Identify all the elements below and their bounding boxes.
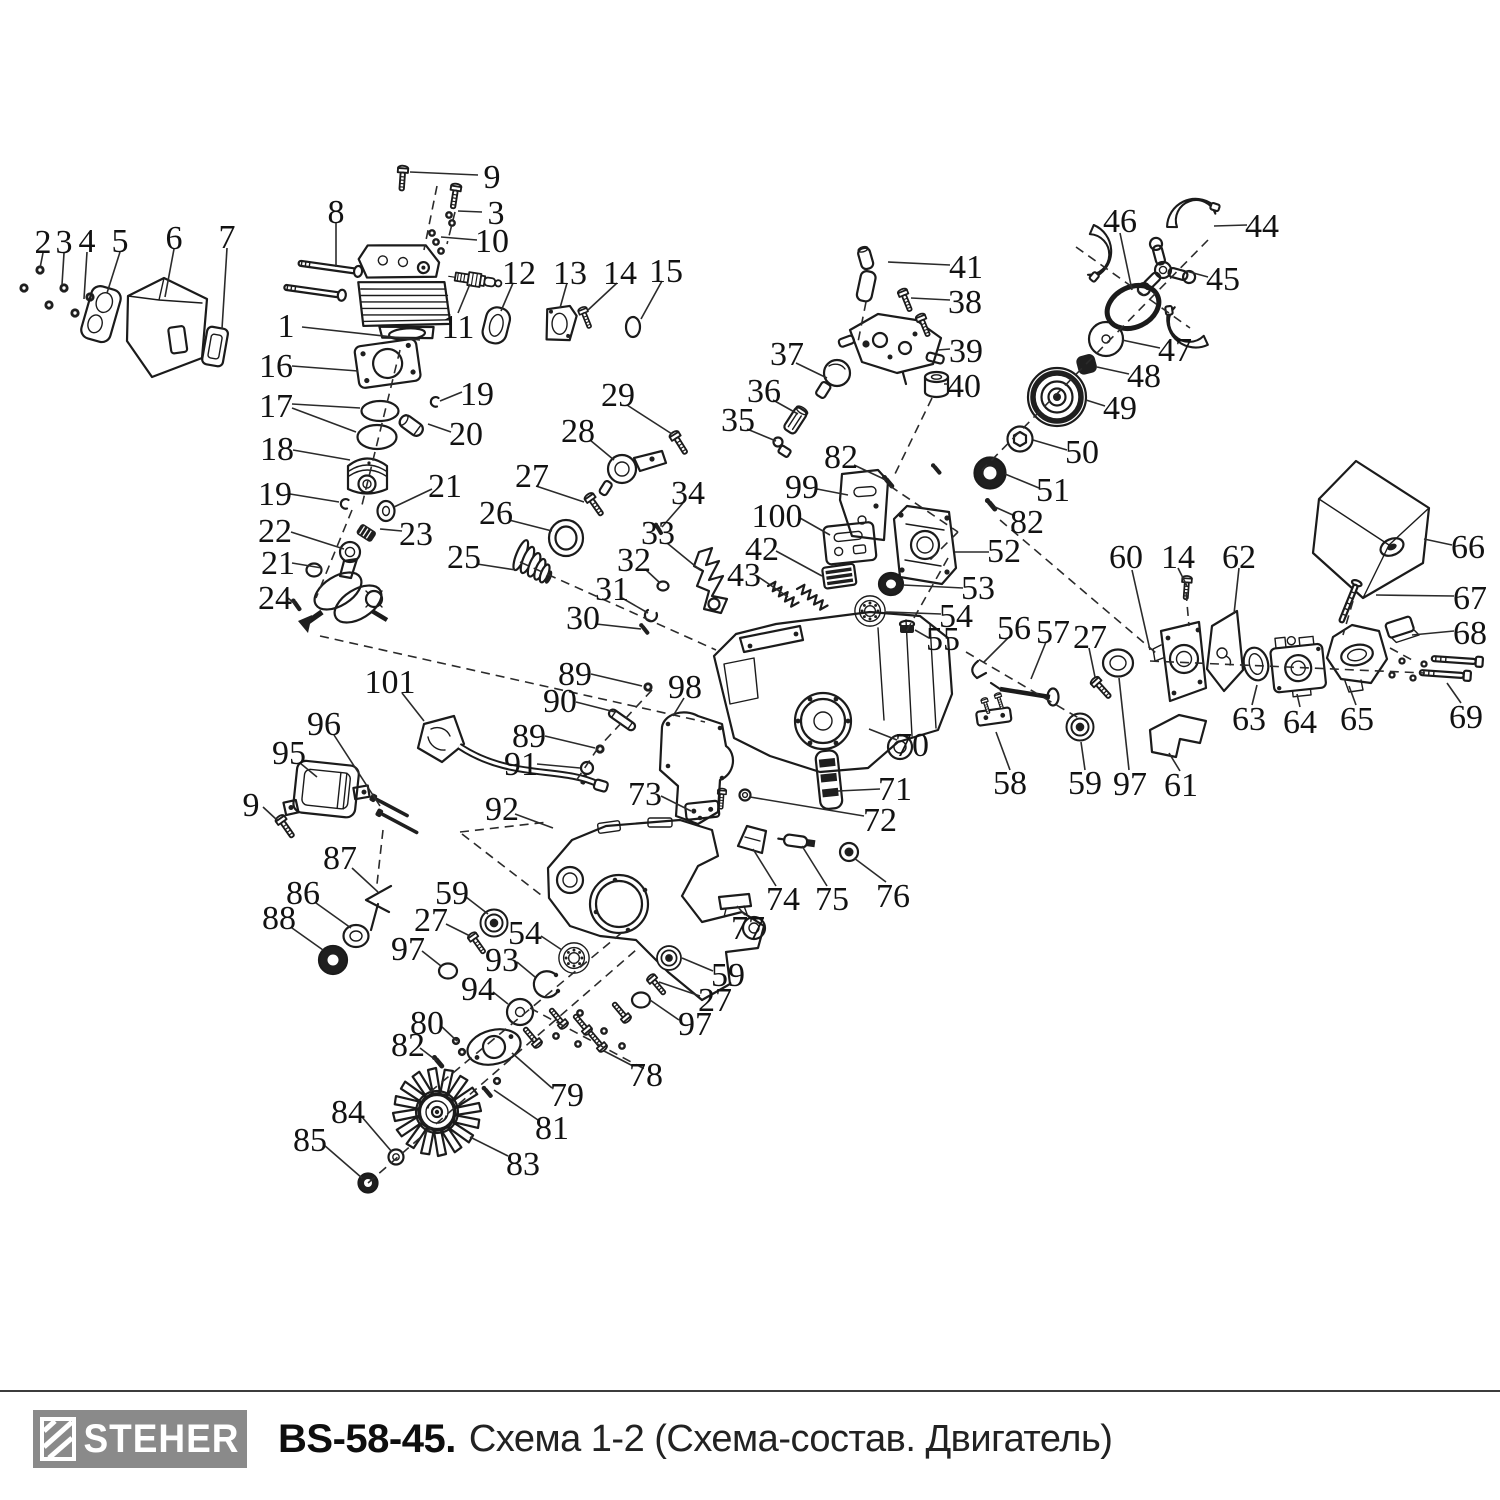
callout-27: 27 <box>515 458 549 495</box>
part-heat-plate-61 <box>1150 715 1206 757</box>
part-chain-tensioner <box>694 548 727 613</box>
part-exhaust-gasket <box>480 305 512 346</box>
part-intake-flange <box>544 303 578 342</box>
leader-line <box>650 1000 679 1020</box>
callout-23: 23 <box>399 516 433 553</box>
callout-21: 21 <box>428 468 462 505</box>
part-screw-cluster-78 <box>521 1000 632 1053</box>
leader-line <box>1186 271 1208 277</box>
part-washer-disc-47 <box>1089 322 1123 356</box>
leader-line <box>470 1137 508 1156</box>
callout-27: 27 <box>1073 619 1107 656</box>
leader-line <box>1119 678 1129 770</box>
brand-logo: STEHER <box>33 1410 247 1468</box>
part-grommet-88 <box>319 946 347 974</box>
leader-line <box>911 298 950 300</box>
leader-line <box>1424 539 1452 545</box>
callout-63: 63 <box>1232 701 1266 738</box>
leader-line <box>1005 474 1039 488</box>
leader-line <box>591 674 642 686</box>
leader-line <box>596 624 641 629</box>
part-bolts-69 <box>1388 654 1483 682</box>
part-intake-boot-65 <box>1327 625 1387 692</box>
callout-79: 79 <box>550 1077 584 1114</box>
callout-19: 19 <box>460 376 494 413</box>
callout-50: 50 <box>1065 434 1099 471</box>
callout-84: 84 <box>331 1094 365 1131</box>
callout-78: 78 <box>629 1057 663 1094</box>
callout-15: 15 <box>649 253 683 290</box>
leader-line <box>293 450 350 460</box>
callout-39: 39 <box>949 333 983 370</box>
doc-title: BS-58-45. Схема 1-2 (Схема-состав. Двига… <box>278 1408 1112 1470</box>
callout-9: 9 <box>484 159 501 196</box>
part-oring-97c <box>632 993 650 1008</box>
callout-19: 19 <box>258 476 292 513</box>
part-base-gasket <box>354 338 421 388</box>
leader-line <box>477 564 516 570</box>
part-cup-washer-51 <box>975 458 1006 489</box>
callout-49: 49 <box>1103 390 1137 427</box>
part-lever-74 <box>738 826 766 853</box>
part-oil-seal-53 <box>879 573 903 595</box>
assembly-axis-line <box>462 834 545 898</box>
callout-24: 24 <box>258 580 292 617</box>
leader-line <box>869 729 897 740</box>
leader-line <box>817 489 848 495</box>
callout-26: 26 <box>479 495 513 532</box>
callout-44: 44 <box>1245 208 1279 245</box>
callout-7: 7 <box>219 219 236 256</box>
callout-4: 4 <box>79 223 96 260</box>
callout-13: 13 <box>553 255 587 292</box>
leader-line <box>316 903 351 928</box>
part-worm-gear <box>510 539 561 586</box>
brand-name: STEHER <box>83 1416 239 1461</box>
leader-line <box>292 408 356 432</box>
part-disc-94 <box>507 999 533 1025</box>
leader-line <box>446 924 470 936</box>
callout-96: 96 <box>307 706 341 743</box>
part-flywheel <box>393 1068 481 1156</box>
callout-52: 52 <box>987 533 1021 570</box>
leader-line <box>682 958 713 971</box>
callout-88: 88 <box>262 900 296 937</box>
callout-25: 25 <box>447 539 481 576</box>
callout-14: 14 <box>1161 539 1195 576</box>
callout-45: 45 <box>1206 261 1240 298</box>
leader-line <box>458 211 482 212</box>
callout-1: 1 <box>278 308 295 345</box>
leader-line <box>440 392 462 401</box>
brand-logo-mark-icon <box>40 1417 76 1461</box>
leader-line <box>292 366 358 371</box>
leader-line <box>290 494 339 502</box>
callout-68: 68 <box>1453 615 1487 652</box>
part-seal-21a <box>378 501 395 521</box>
part-clutch-oring <box>1100 277 1166 337</box>
part-circlip-93 <box>534 971 560 997</box>
leader-line <box>493 992 508 1004</box>
callout-98: 98 <box>668 669 702 706</box>
callout-11: 11 <box>442 309 475 346</box>
leader-line <box>263 807 277 820</box>
leader-line <box>1120 233 1132 290</box>
assembly-axis-line <box>966 652 1082 720</box>
part-engine-pad-60 <box>1153 622 1206 701</box>
part-needle-bearing-23 <box>355 523 377 543</box>
callout-73: 73 <box>628 776 662 813</box>
callout-75: 75 <box>815 881 849 918</box>
footer-bar: STEHER BS-58-45. Схема 1-2 (Схема-состав… <box>0 1390 1500 1500</box>
callout-82: 82 <box>824 439 858 476</box>
part-clip-56 <box>972 661 986 678</box>
part-oil-pump <box>599 451 666 496</box>
leader-line <box>466 897 488 914</box>
callout-91: 91 <box>504 746 538 783</box>
callout-33: 33 <box>641 515 675 552</box>
leader-line <box>750 797 864 816</box>
callout-17: 17 <box>259 388 293 425</box>
assembly-axis-line <box>893 398 932 478</box>
part-block-68 <box>1385 615 1419 644</box>
part-hex-washer-50 <box>1008 427 1033 452</box>
callout-81: 81 <box>535 1110 569 1147</box>
callout-21: 21 <box>261 545 295 582</box>
callout-61: 61 <box>1164 767 1198 804</box>
callout-92: 92 <box>485 791 519 828</box>
callout-41: 41 <box>949 249 983 286</box>
callout-94: 94 <box>461 971 495 1008</box>
callout-38: 38 <box>948 284 982 321</box>
leader-line <box>222 248 227 329</box>
callout-57: 57 <box>1036 614 1070 651</box>
callout-97: 97 <box>1113 766 1147 803</box>
callout-29: 29 <box>601 377 635 414</box>
part-flywheel-gasket-79 <box>464 1024 525 1070</box>
callout-62: 62 <box>1222 539 1256 576</box>
callout-64: 64 <box>1283 704 1317 741</box>
model-code: BS-58-45. <box>278 1417 456 1462</box>
callout-28: 28 <box>561 413 595 450</box>
part-chain-plate-outer <box>840 470 888 540</box>
part-bracket-58 <box>974 691 1012 726</box>
part-circlip-19a <box>431 397 439 407</box>
schema-subtitle: Схема 1-2 (Схема-состав. Двигатель) <box>469 1418 1113 1461</box>
callout-16: 16 <box>259 348 293 385</box>
part-circlip-19b <box>341 499 349 509</box>
callout-83: 83 <box>506 1146 540 1183</box>
callout-97: 97 <box>678 1006 712 1043</box>
part-muffler-group <box>19 265 228 377</box>
part-fuel-elbow <box>856 245 877 302</box>
callout-9: 9 <box>243 787 260 824</box>
leader-line <box>776 551 822 576</box>
callout-82: 82 <box>391 1027 425 1064</box>
leader-line <box>537 764 580 768</box>
callout-58: 58 <box>993 765 1027 802</box>
leader-line <box>509 520 552 531</box>
callout-74: 74 <box>766 881 800 918</box>
leader-line <box>541 936 562 950</box>
leader-line <box>1033 440 1067 450</box>
callout-97: 97 <box>391 931 425 968</box>
callout-70: 70 <box>895 727 929 764</box>
leader-line <box>394 489 432 507</box>
part-crankshaft <box>298 542 388 633</box>
leader-line <box>428 424 451 432</box>
leader-line <box>324 1145 362 1178</box>
leader-line <box>292 404 360 408</box>
assembly-axis-line <box>368 950 636 1183</box>
leader-line <box>362 1117 392 1152</box>
callout-67: 67 <box>1453 580 1487 617</box>
leader-line <box>1214 225 1247 226</box>
callout-12: 12 <box>502 255 536 292</box>
leader-line <box>1376 595 1454 596</box>
callout-47: 47 <box>1158 332 1192 369</box>
callout-14: 14 <box>603 255 637 292</box>
part-seal-ring-26 <box>549 520 583 556</box>
callout-34: 34 <box>671 475 705 512</box>
callout-76: 76 <box>876 878 910 915</box>
leader-line <box>1412 631 1454 635</box>
part-airbox-cover <box>1313 461 1429 598</box>
part-nut-72 <box>740 790 751 801</box>
callout-40: 40 <box>947 368 981 405</box>
leader-line <box>802 846 827 886</box>
callout-3: 3 <box>56 224 73 261</box>
callout-labels: 1234567893101112131415161718192019212223… <box>35 159 1488 1183</box>
part-piston <box>348 459 387 494</box>
parts-diagram-page: 1234567893101112131415161718192019212223… <box>0 0 1500 1500</box>
leader-line <box>1097 367 1129 374</box>
callout-56: 56 <box>997 610 1031 647</box>
part-carb-gasket-62 <box>1207 611 1243 691</box>
part-cylinder-studs <box>284 165 462 301</box>
callout-77: 77 <box>731 910 765 947</box>
callout-2: 2 <box>35 224 52 261</box>
callout-37: 37 <box>770 336 804 373</box>
part-oring-97a <box>1103 650 1133 677</box>
part-piston-pin <box>397 413 425 438</box>
part-crankcase-cover <box>894 506 956 584</box>
callout-69: 69 <box>1449 699 1483 736</box>
callout-55: 55 <box>926 621 960 658</box>
assembly-axis-line <box>430 930 625 1092</box>
part-buffer-column-71 <box>815 750 843 810</box>
part-cylinder <box>356 240 452 343</box>
leader-line <box>1122 340 1160 348</box>
leader-line <box>441 237 477 240</box>
callout-100: 100 <box>752 498 803 535</box>
assembly-axis-line <box>377 830 383 884</box>
leader-line <box>512 1053 552 1088</box>
part-decomp-valve-75 <box>778 833 816 849</box>
callout-43: 43 <box>727 557 761 594</box>
callout-18: 18 <box>260 431 294 468</box>
callout-66: 66 <box>1451 529 1485 566</box>
leader-line <box>576 702 615 712</box>
callout-59: 59 <box>1068 765 1102 802</box>
callout-72: 72 <box>863 802 897 839</box>
parts-artwork <box>19 165 1483 1192</box>
callout-5: 5 <box>112 223 129 260</box>
part-ring-86 <box>344 925 369 947</box>
callout-101: 101 <box>365 664 416 701</box>
callout-6: 6 <box>166 220 183 257</box>
leader-line <box>291 532 344 549</box>
part-ring-15 <box>626 317 640 337</box>
leader-line <box>410 172 478 175</box>
leader-line <box>545 736 595 748</box>
leader-line <box>494 1090 538 1120</box>
leader-line <box>292 928 323 950</box>
callout-60: 60 <box>1109 539 1143 576</box>
callout-20: 20 <box>449 416 483 453</box>
part-clutch-drum <box>1028 368 1086 426</box>
part-wire-clip-87 <box>366 886 391 930</box>
callout-90: 90 <box>543 683 577 720</box>
part-intake-grid <box>822 564 857 589</box>
callout-87: 87 <box>323 840 357 877</box>
callout-36: 36 <box>747 373 781 410</box>
callout-8: 8 <box>328 194 345 231</box>
callout-85: 85 <box>293 1122 327 1159</box>
engine-exploded-diagram: 1234567893101112131415161718192019212223… <box>0 0 1500 1390</box>
leader-line <box>838 789 880 791</box>
part-spacer-63 <box>1240 645 1271 683</box>
leader-line <box>888 262 950 265</box>
part-oring-97b <box>439 964 457 979</box>
callout-95: 95 <box>272 735 306 772</box>
callout-46: 46 <box>1103 203 1137 240</box>
leader-line <box>1132 570 1150 650</box>
part-spark-plug <box>448 269 503 290</box>
callout-65: 65 <box>1340 701 1374 738</box>
leader-line <box>757 576 788 597</box>
leader-line <box>517 962 535 977</box>
